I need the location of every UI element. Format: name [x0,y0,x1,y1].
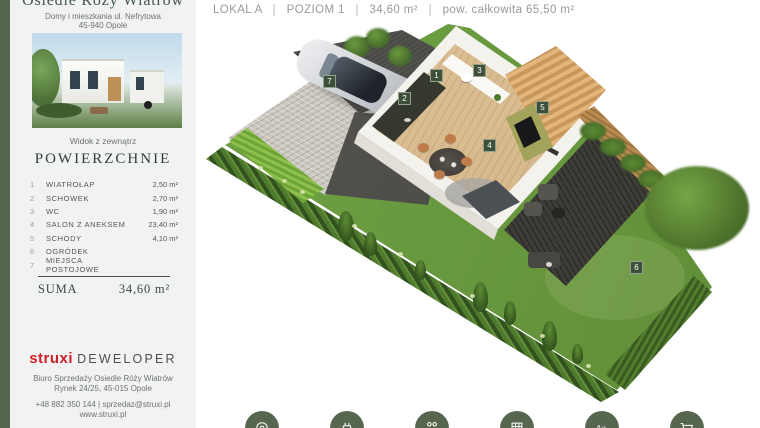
photo-window [136,77,144,90]
room-name: WIATROŁAP [46,180,132,189]
room-area-table: 1WIATROŁAP2,50 m²2SCHOWEK2,70 m²3WC1,90 … [30,178,178,272]
room-number: 1 [30,180,46,189]
sales-office-address: Rynek 24/25, 45-015 Opole [10,384,196,393]
room-row: 3WC1,90 m² [30,205,178,218]
photo-grill [144,101,152,109]
room-area: 2,50 m² [132,180,178,189]
website-link[interactable]: www.struxi.pl [10,410,196,419]
school-icon[interactable]: Aa [585,411,619,428]
plan-marker-1: 1 [430,69,443,82]
room-row: 2SCHOWEK2,70 m² [30,191,178,204]
shopping-cart-icon[interactable] [670,411,704,428]
plan-marker-3: 3 [473,64,486,77]
room-row: 5SCHODY4,10 m² [30,232,178,245]
logo-brand: struxi [29,350,73,367]
brochure-page: LOKAL A | POZIOM 1 | 34,60 m² | pow. cał… [0,0,760,428]
room-number: 2 [30,194,46,203]
ev-charger-icon[interactable] [330,411,364,428]
plan-marker-7: 7 [323,75,336,88]
playground-icon[interactable] [500,411,534,428]
room-number: 3 [30,207,46,216]
room-row: 1WIATROŁAP2,50 m² [30,178,178,191]
room-number: 6 [30,247,46,256]
room-row: 7MIEJSCA POSTOJOWE [30,258,178,271]
family-icon[interactable] [415,411,449,428]
estate-address: 45-940 Opole [10,21,196,30]
room-number: 5 [30,234,46,243]
developer-logo: struxiDEWELOPER [10,350,196,368]
total-label: SUMA [38,282,77,297]
total-value: 34,60 m² [119,282,170,297]
exterior-photo [32,33,182,128]
room-name: SCHODY [46,234,132,243]
room-name: SALON Z ANEKSEM [46,220,132,229]
photo-caption: Widok z zewnątrz [10,136,196,146]
phone-email-line[interactable]: +48 882 350 144 | sprzedaz@struxi.pl [10,400,196,409]
photo-wood-accent [108,77,121,101]
estate-title: Osiedle Róży Wiatrów [10,0,196,10]
plan-marker-4: 4 [483,139,496,152]
room-area: 1,90 m² [132,207,178,216]
sales-office-line: Biuro Sprzedaży Osiedle Róży Wiatrów [10,374,196,383]
room-name: OGRÓDEK [46,247,132,256]
plan-marker-5: 5 [536,101,549,114]
photo-window [70,71,80,89]
info-sidebar: Osiedle Róży Wiatrów Domy i mieszkania u… [0,0,196,428]
room-area: 2,70 m² [132,194,178,203]
room-number: 7 [30,261,46,270]
room-name: SCHOWEK [46,194,132,203]
logo-word: DEWELOPER [77,352,177,366]
room-area: 4,10 m² [132,234,178,243]
plan-marker-2: 2 [398,92,411,105]
room-name: WC [46,207,132,216]
room-name: MIEJSCA POSTOJOWE [46,256,132,274]
room-row: 4SALON Z ANEKSEM23,40 m² [30,218,178,231]
photo-shrubs [36,103,82,118]
estate-subtitle: Domy i mieszkania ul. Nefrytowa [10,12,196,21]
room-number: 4 [30,220,46,229]
photo-garden-table [90,107,108,114]
photo-window [88,71,98,89]
plan-marker-6: 6 [630,261,643,274]
location-icon[interactable] [245,411,279,428]
areas-section-title: POWIERZCHNIE [10,151,196,168]
room-area: 23,40 m² [132,220,178,229]
amenity-icon-row: Aa [245,411,704,428]
divider [38,276,170,277]
photo-tree [32,49,60,107]
svg-text:Aa: Aa [596,424,607,428]
accent-stripe [0,0,10,428]
total-row: SUMA 34,60 m² [38,282,170,297]
